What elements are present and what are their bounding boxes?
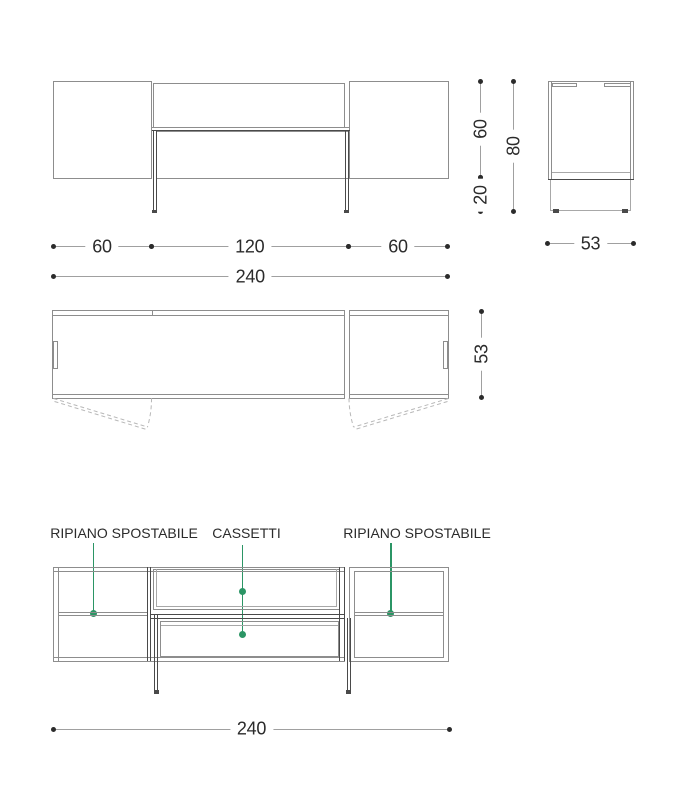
dim-endpoint-dot xyxy=(479,395,484,400)
dim-label: 53 xyxy=(471,338,492,371)
side-top-panel-notch-left xyxy=(552,83,577,87)
dim-label: 80 xyxy=(503,130,524,163)
dim-endpoint-dot xyxy=(346,244,351,249)
dim-endpoint-dot xyxy=(149,244,154,249)
internal-bottom-drawer xyxy=(160,621,339,657)
plan-division-tick xyxy=(152,310,153,315)
plan-right-handle xyxy=(443,341,448,369)
internal-mid-frame xyxy=(151,614,345,619)
dim-label: 20 xyxy=(470,178,491,211)
front-drawer-front-panel xyxy=(156,131,349,179)
front-right-leg-foot xyxy=(344,210,349,214)
label-movable-shelf-right: RIPIANO SPOSTABILE xyxy=(343,526,491,541)
internal-left-movable-shelf xyxy=(59,612,148,616)
dim-endpoint-dot xyxy=(445,244,450,249)
right-door-open-line-2 xyxy=(355,402,448,430)
dim-endpoint-dot xyxy=(479,309,484,314)
internal-right-leg-foot xyxy=(346,690,351,694)
plan-right-inner-top-line xyxy=(350,315,448,316)
right-door-open-line xyxy=(354,399,449,428)
dim-label: 53 xyxy=(574,233,607,254)
side-foot-right xyxy=(622,209,628,213)
internal-right-divider xyxy=(339,567,345,661)
dim-endpoint-dot xyxy=(545,241,550,246)
dim-endpoint-dot xyxy=(51,727,56,732)
front-left-cabinet-box xyxy=(53,81,152,179)
door-swing-dashed-lines xyxy=(40,395,460,440)
internal-top-drawer-inner-line xyxy=(156,569,338,607)
front-right-cabinet-box xyxy=(349,81,449,179)
label-drawers: CASSETTI xyxy=(212,526,280,541)
dim-endpoint-dot xyxy=(511,79,516,84)
internal-bottom-inner-line xyxy=(54,657,345,658)
dim-label: 60 xyxy=(470,113,491,146)
side-body xyxy=(548,81,634,180)
left-door-swing-arc xyxy=(147,398,151,427)
side-foot-left xyxy=(553,209,559,213)
side-bottom-inner-line xyxy=(552,172,631,173)
dim-label: 60 xyxy=(381,236,414,257)
front-open-compartment xyxy=(153,83,345,128)
plan-left-handle xyxy=(53,341,58,369)
front-left-leg xyxy=(153,131,157,210)
label-movable-shelf-left: RIPIANO SPOSTABILE xyxy=(50,526,198,541)
front-left-leg-foot xyxy=(152,210,157,214)
plan-left-section xyxy=(52,310,345,399)
side-leg-frame xyxy=(550,180,631,212)
furniture-technical-drawing: 60 120 60 240 60 xyxy=(0,0,679,785)
dim-endpoint-dot xyxy=(447,727,452,732)
right-door-swing-arc xyxy=(349,398,354,427)
dim-label: 120 xyxy=(228,236,271,257)
plan-right-section xyxy=(349,310,449,399)
internal-right-leg xyxy=(347,618,351,690)
dim-label: 60 xyxy=(85,236,118,257)
dim-endpoint-dot xyxy=(51,274,56,279)
internal-right-movable-shelf xyxy=(354,612,443,616)
side-right-wall-inner-line xyxy=(630,82,631,179)
dim-endpoint-dot xyxy=(51,244,56,249)
internal-left-leg-foot xyxy=(154,690,159,694)
left-door-open-line xyxy=(54,399,148,428)
left-door-open-line-2 xyxy=(55,402,147,430)
side-left-wall-inner-line xyxy=(551,82,552,179)
dim-endpoint-dot xyxy=(631,241,636,246)
dim-label: 240 xyxy=(229,266,272,287)
internal-bottom-drawer-inner-line xyxy=(161,625,338,626)
dim-label: 240 xyxy=(230,719,273,740)
dim-endpoint-dot xyxy=(478,79,483,84)
dim-endpoint-dot xyxy=(445,274,450,279)
front-right-leg xyxy=(345,131,349,210)
plan-left-inner-top-line xyxy=(53,315,344,316)
side-top-panel-notch-right xyxy=(604,83,631,87)
dim-endpoint-dot xyxy=(511,209,516,214)
internal-left-leg xyxy=(154,615,158,690)
